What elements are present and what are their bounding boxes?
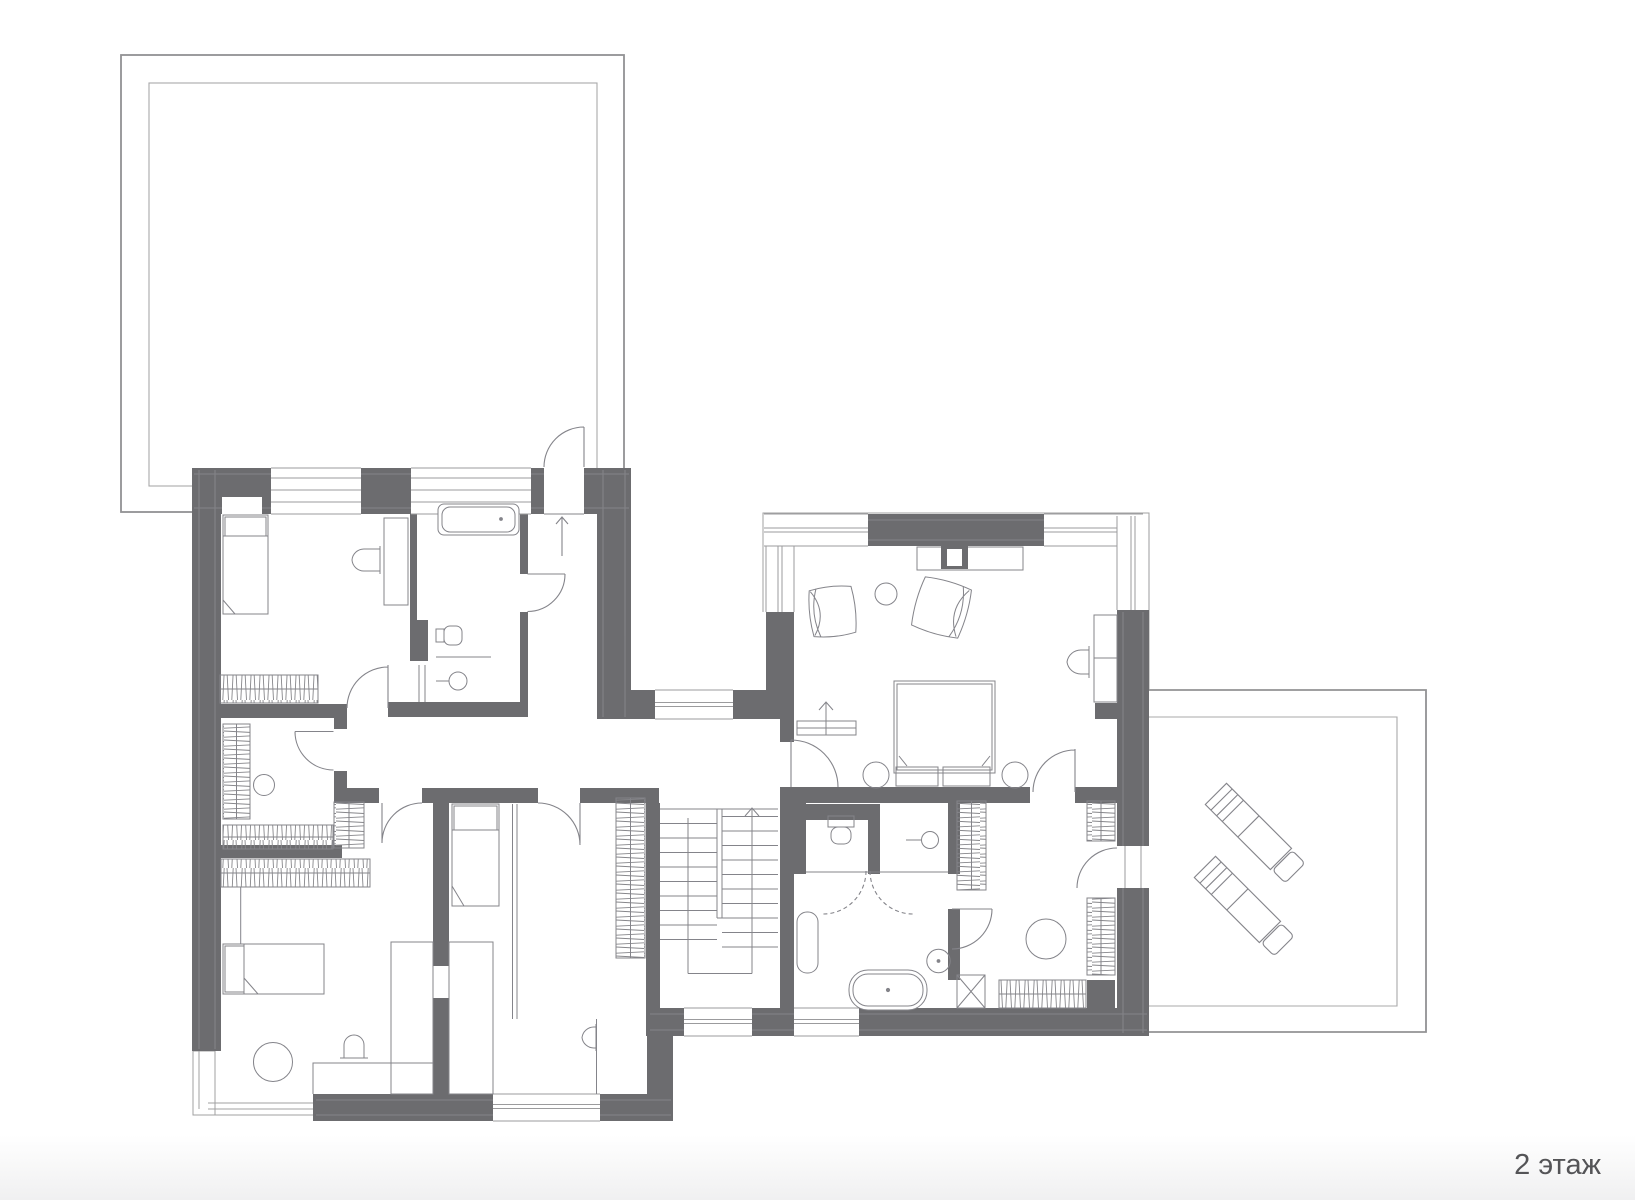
svg-text:2 этаж: 2 этаж — [1514, 1149, 1601, 1181]
